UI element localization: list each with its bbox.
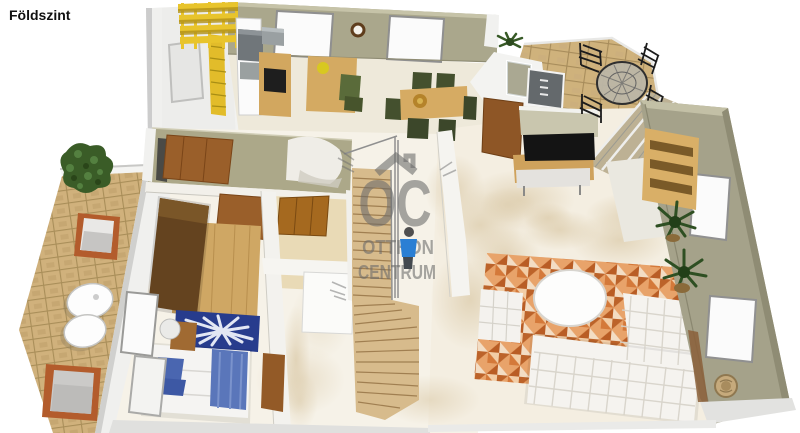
svg-text:OTTHON: OTTHON xyxy=(362,236,434,259)
svg-text:CENTRUM: CENTRUM xyxy=(358,261,436,283)
svg-text:OC: OC xyxy=(358,167,431,241)
svg-text:Földszint: Földszint xyxy=(9,7,71,23)
